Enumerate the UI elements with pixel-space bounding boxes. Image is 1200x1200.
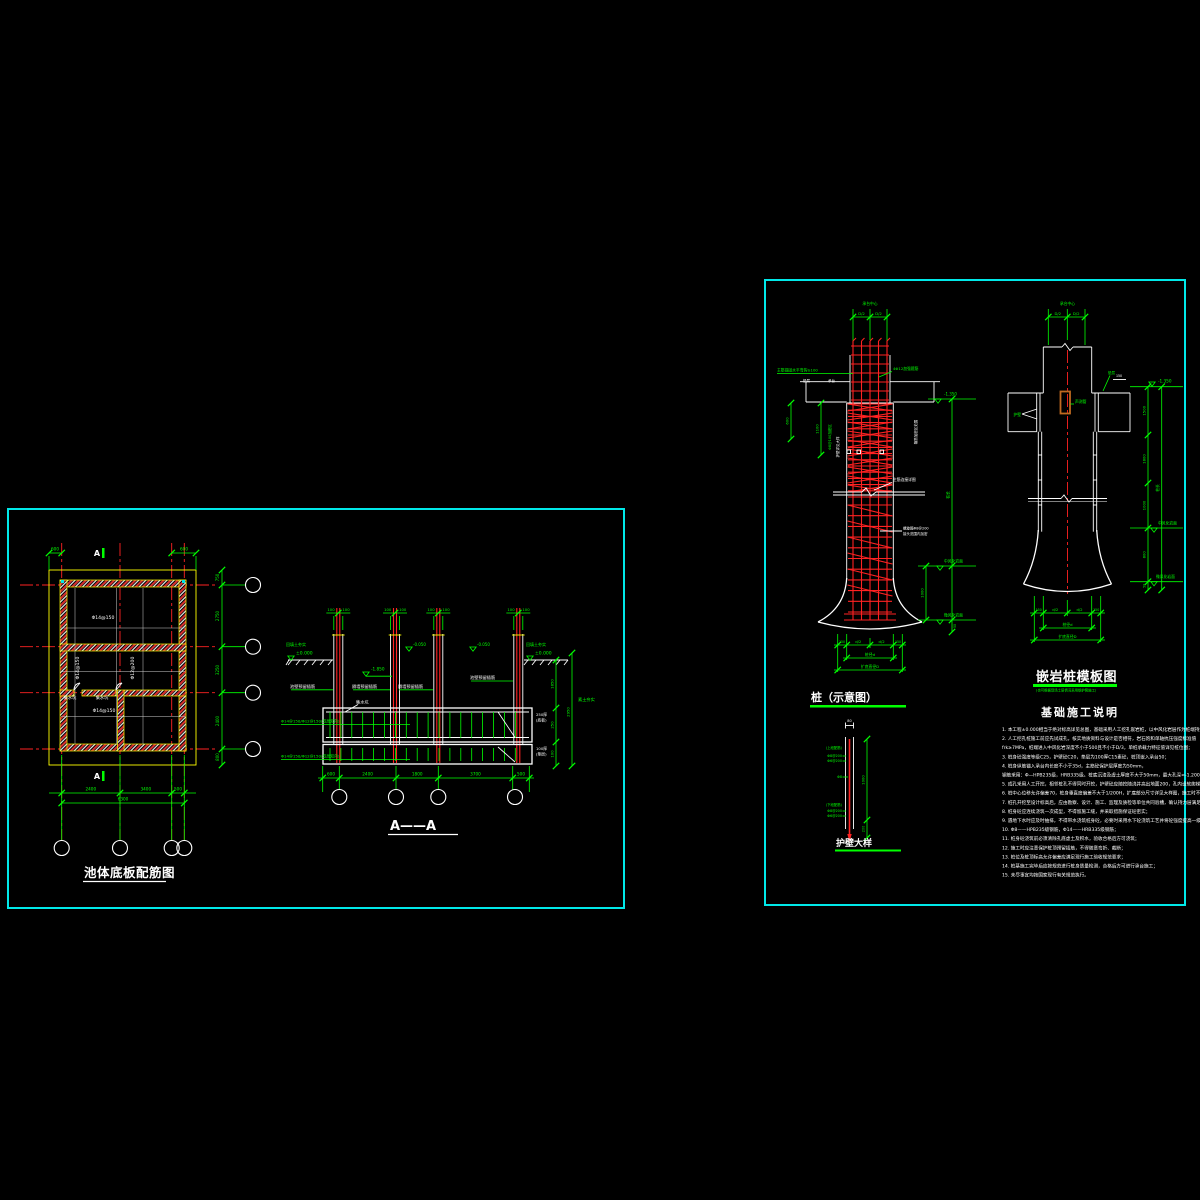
note-line: 1. 本工程±0.000相当于绝对标高详见总图，基础采用人工挖孔嵌岩桩，以中风化… [1002,726,1200,733]
note-line: 4. 桩身纵筋锚入承台内长度不小于35d，主筋砼保护层厚度为50mm， [1002,762,1146,769]
cs-lower1: Φ8@200 [827,809,842,813]
cs-dim-1000: 1000 [861,775,866,785]
ground-label-left: 回填土夯实 [286,641,306,647]
cs-upper: (上段配筋) [826,745,843,750]
plan-bdim-1: 3400 [140,787,151,792]
sec-bdim-3: 3700 [470,772,481,777]
notes-title: 基础施工说明 [1040,705,1119,719]
note-line: 9. 遇地下水时应及时抽排，不得带水浇筑桩身砼，必要时采用水下砼浇筑工艺并将砼强… [1002,817,1200,824]
note-line: 2. 人工挖孔桩施工前应先试成孔，核实地质资料与设计是否相符，岩石饱和单轴抗压强… [1002,735,1197,742]
col-dim: 100 [442,607,450,612]
wall-label-3: 隔墙预留插筋 [398,683,423,690]
pf-rock1: 中风化岩面 [1158,521,1177,526]
ps-rock1: 中风化岩面 [944,559,963,564]
ps-d2-2: D/2 [875,311,882,316]
note-line: 11. 桩身砼浇筑前必须清除孔底虚土及积水，验收合格后方可浇筑； [1002,835,1139,842]
right-label-1a: 250厚 [536,712,547,717]
sec-bdim-0: 600 [327,772,335,777]
elev-wall-1: -0.050 [413,642,426,647]
note-line: 7. 桩孔开挖至设计标高后，应由勘察、设计、施工、监理及质检等单位共同验槽，确认… [1002,799,1200,806]
ps-dim-1100: 1100 [815,424,820,434]
note-line: 6. 桩中心位移允许偏差70，桩身垂直度偏差不大于1/200H，扩底部分尺寸详见… [1002,790,1200,797]
pf-rdim-3: 800 [1142,551,1147,559]
col-dim: 100 [399,607,407,612]
plan-rdim-0: 750 [215,573,220,581]
pf-rock2: 微风化岩面 [1156,574,1175,579]
pf-rdim-2: 1000 [1142,500,1147,510]
ps-spiral-2: 接头范围内加密 [903,531,928,536]
note-line: 10. Φ8——HPB235级钢筋，Φ14——HRB335级钢筋； [1002,826,1119,833]
pf-d2-1: D/2 [1054,311,1061,316]
sec-bdim-1: 2400 [362,772,373,777]
pf-d2-2: D/2 [1073,311,1080,316]
ps-bd2-1: d/2 [855,639,862,644]
pf-subtitle: (也可根据现场土层情况采用钢护筒施工) [1036,688,1097,693]
note-line: 13. 桩位及桩顶标高允许偏差应满足现行施工验收规范要求； [1002,853,1126,860]
section-marker-a-top: A [94,549,101,558]
ground-label-right: 回填土夯实 [526,641,546,647]
elev-mid: -1.850 [371,667,385,672]
cs-upper1: Φ8@200 [827,754,842,758]
ps-dense-label: Φ8@100加密区 [827,424,832,450]
plan-rdim-1: 2750 [215,610,220,621]
ps-joint-label: 主筋连接详图 [893,477,916,482]
elev-zero-left: ±0.000 [296,651,313,657]
pf-pad-label: 垫层 [1108,370,1116,375]
plan-rdim-2: 3250 [215,664,220,675]
section-title: A——A [390,819,436,834]
section-sump: 集水坑 [356,699,369,706]
elev-wall-2: -0.050 [477,642,490,647]
cs-dim-80: 80 [847,719,851,723]
wall-label-4: 池壁预留插筋 [470,674,495,681]
plan-bdim-2: 500 [174,787,182,792]
note-line: 15. 未尽事宜均按国家现行有关规范执行。 [1002,872,1089,879]
pf-dim-150t: 150 [1116,374,1122,378]
plan-dim-600-right: 600 [180,547,188,552]
ps-bd2-2: d/2 [879,639,886,644]
right-label-2b: (垫层) [536,752,547,757]
ps-d2-1: D/2 [858,311,865,316]
col-dim: 100 [522,607,530,612]
note-line: 3. 桩身砼强度等级C25，护壁砼C20，垫层为100厚C15素砼，桩顶嵌入承台… [1002,753,1169,760]
ps-range-label: 箍筋加密区范围 [913,419,918,444]
ps-spiral-1: 螺旋箍Φ8@200 [903,526,929,531]
ps-dim-D: 扩底直径D [861,664,879,669]
note-line: 12. 施工时应注意保护桩顶预留插筋，不得随意弯折、截断； [1002,844,1126,851]
plan-dim-600-left: 600 [51,547,59,552]
slab-rebar-2: Φ14@150/Φ12@150(双层双向) [281,754,340,759]
pf-dim-150b: 150 [1093,608,1099,612]
plan-rdim-3: 2400 [215,715,220,726]
wall-label-2: 隔墙预留插筋 [352,683,377,690]
section-marker-a-bottom: A [94,772,101,781]
pf-tube-label: 声测管 [1075,399,1087,404]
ps-tie-label: 4Φ12加强箍筋 [893,366,919,371]
note-line: 5. 成孔采用人工开挖，相邻桩孔不得同时开挖，护壁砼应随挖随浇并高出地面200，… [1002,781,1200,788]
cs-lower2: Φ6@200 [827,814,842,818]
ps-dim-d: 桩径d [865,652,876,657]
cs-dim-200: 200 [862,826,866,832]
pf-dim-150a: 150 [1036,608,1042,612]
right-label-1b: (底板) [536,718,547,723]
plan-dim-total: 6300 [118,797,129,802]
ps-casing-label: 护壁详见大样 [835,436,840,457]
ps-dim-len: 桩长 [946,491,951,499]
note-line: 钢筋采用：Φ—HPB235级，HRB335级。桩底沉渣及虚土厚度不大于50mm，… [1002,772,1200,779]
ps-dim-150a: 150 [839,640,845,644]
pf-dim-len: 桩长 [1155,484,1160,492]
sec-rdim-0: 1850 [550,679,555,689]
col-dim: 100 [384,607,392,612]
note-line: frk≥7MPa，桩端进入中风化岩深度不小于500且不小于D/3，单桩承载力特征… [1002,744,1193,751]
col-dim: 100 [327,607,335,612]
plan-tick-2 [182,580,185,583]
slab-rebar-1: Φ14@150/Φ12@150(双层双向) [281,719,340,724]
ps-anchor-label: 主筋锚固水平弯钩≥100 [777,368,818,373]
ps-cap-label-1: 垫层 [803,378,811,383]
sec-rdim-1: 250 [550,721,555,729]
wall-label-1: 池壁预留插筋 [290,683,315,690]
pf-elev-top: -1.350 [1158,379,1172,384]
plan-rebar-top: Φ14@150 [92,615,115,621]
cad-canvas: Φ14@150 Φ14@150 Φ12@200 集水坑 集水坑 Φ14@150 … [0,0,1200,1200]
ps-cap-label-2: 承台 [828,378,836,383]
note-line: 14. 桩基施工完毕后应按规范进行桩身质量检测，合格后方可进行承台施工； [1002,863,1158,870]
sec-bdim-2: 1800 [412,772,423,777]
ps-elev-top: -1.350 [944,392,957,397]
pf-rdim-0: 1500 [1142,405,1147,415]
plan-bdim-0: 2400 [85,787,96,792]
ps-dim-600: 600 [785,417,790,425]
ps-rock2: 微风化岩面 [944,613,963,618]
plan-rdim-4: 800 [215,753,220,761]
sec-rdim-2: 100 [550,750,555,758]
pf-dim-D: 扩底直径D [1058,634,1076,639]
note-line: 8. 桩身砼应连续浇筑一次成型，不得留施工缝，并采取措施保证砼密实； [1002,808,1150,815]
pf-title-underline [1033,684,1117,687]
cs-upper2: Φ6@200 [827,759,842,763]
cs-lower: (下段配筋) [826,802,843,807]
pf-dim-d: 桩径d [1062,622,1073,627]
pf-top-label: 承台中心 [1060,301,1075,306]
ps-title: 桩（示意图） [811,690,877,704]
pf-rdim-1: 1800 [1142,454,1147,464]
plan-tick-1 [61,580,64,583]
plan-sump-2: 集水坑 [96,694,109,701]
plan-rebar-left: Φ14@150 [75,657,81,680]
cs-title: 护壁大样 [836,837,872,849]
right-label-2a: 100厚 [536,746,547,751]
pf-title: 嵌岩桩模板图 [1036,669,1117,685]
plan-rebar-bottom: Φ14@150 [93,708,116,714]
col-dim: 100 [427,607,435,612]
soil-label: 素土夯实 [578,696,595,703]
sec-rdim-total: 2950 [566,707,571,717]
ps-dim-50: 50 [953,624,957,628]
ps-dim-1000: 1000 [920,588,925,598]
plan-sump-1: 集水坑 [64,694,77,701]
plan-rebar-mid: Φ12@200 [130,657,136,680]
plan-title: 池体底板配筋图 [84,865,175,880]
ps-title-underline [810,705,906,708]
pf-rdim-4: 50 [1143,584,1147,588]
elev-zero-right: ±0.000 [535,651,552,657]
pf-casing-label: 护壁 [1013,412,1021,417]
cs-mid: Φ8 [837,775,842,779]
ps-top-label: 承台中心 [862,301,877,306]
col-dim: 100 [342,607,350,612]
pf-bd2-2: d/2 [1076,607,1083,612]
sec-bdim-4: 500 [517,772,525,777]
col-dim: 100 [507,607,515,612]
pf-bd2-1: d/2 [1052,607,1059,612]
ps-dim-150b: 150 [895,640,901,644]
